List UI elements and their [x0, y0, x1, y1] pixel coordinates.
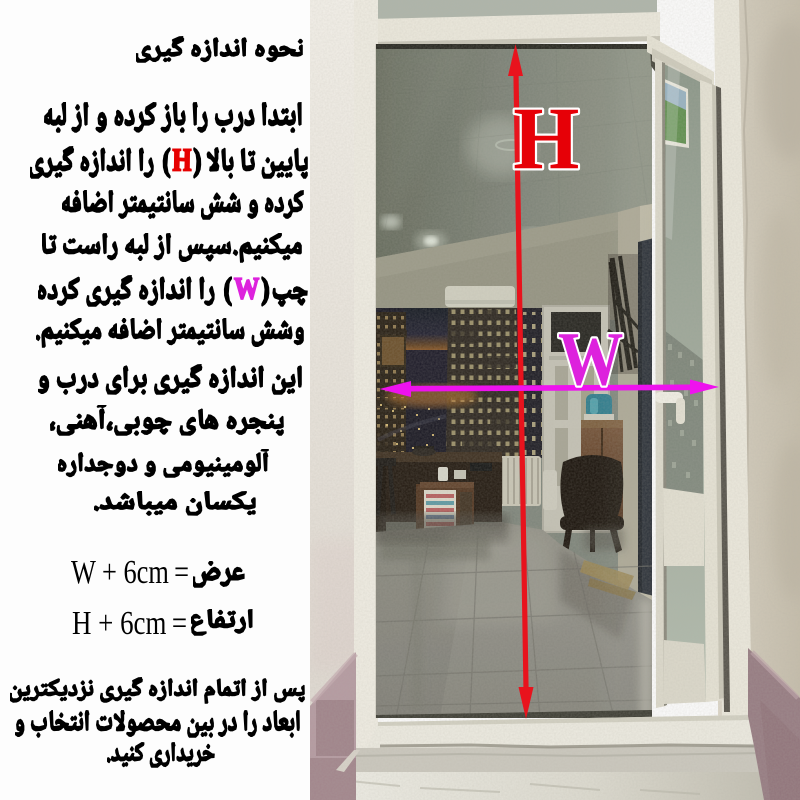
svg-text:H + 6cm =: H + 6cm =	[72, 605, 187, 642]
svg-text:H: H	[513, 88, 579, 187]
svg-text:W: W	[558, 318, 623, 402]
svg-text:W + 6cm =: W + 6cm =	[71, 554, 189, 591]
